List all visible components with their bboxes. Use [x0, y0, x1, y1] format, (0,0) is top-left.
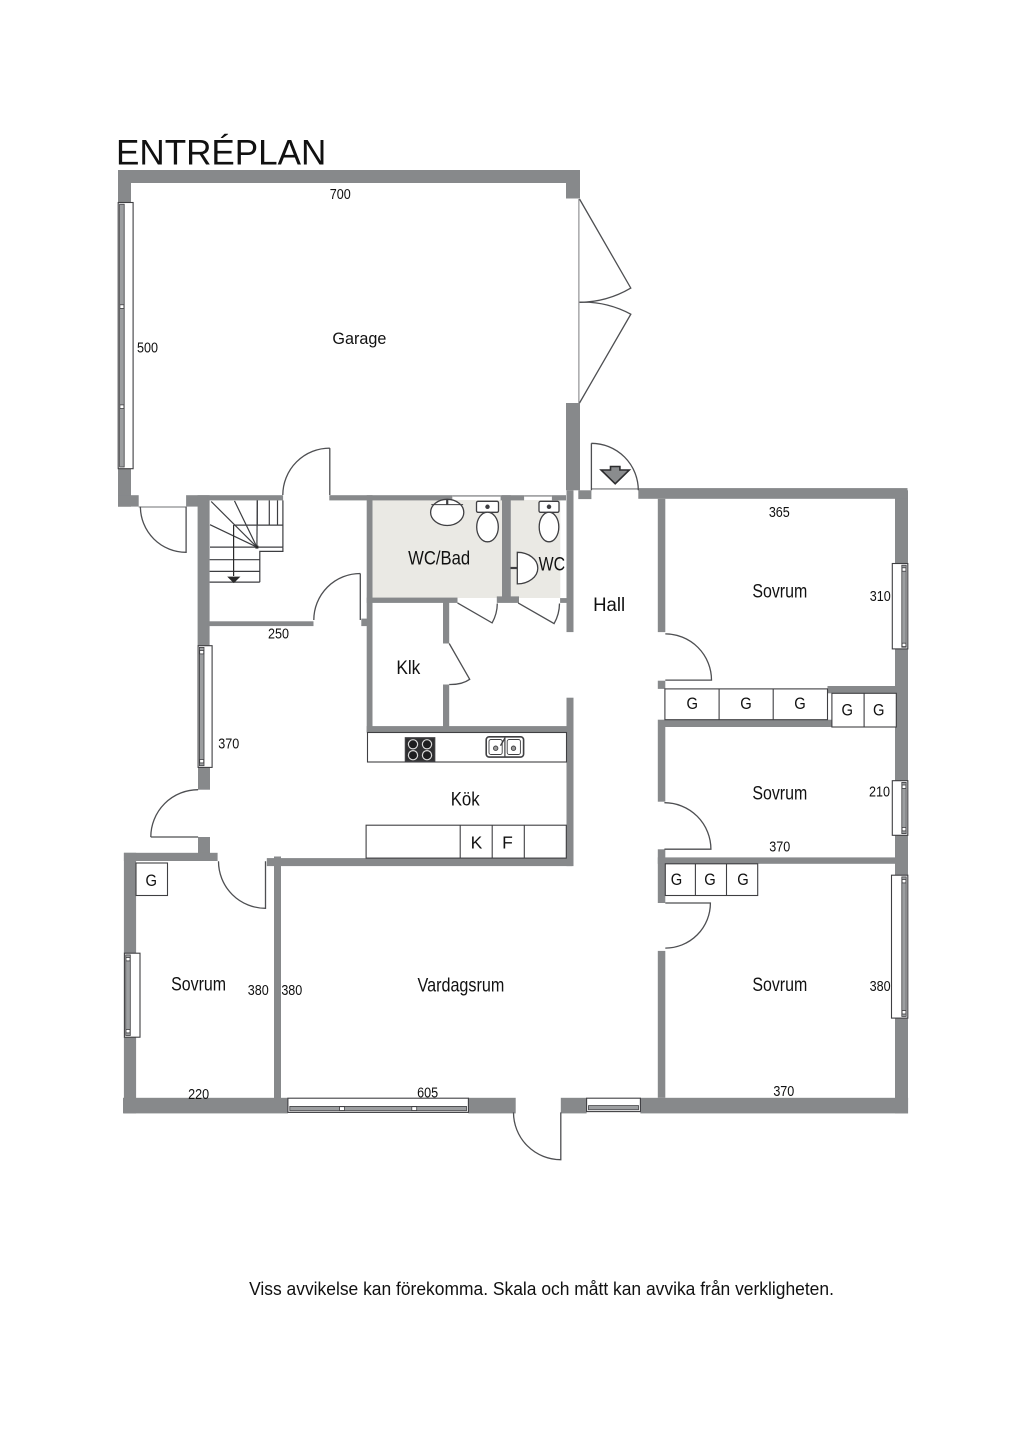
svg-text:365: 365 [769, 503, 790, 520]
svg-text:Hall: Hall [593, 594, 625, 615]
svg-text:G: G [146, 872, 157, 890]
svg-text:Sovrum: Sovrum [171, 973, 226, 995]
svg-text:G: G [794, 695, 805, 713]
svg-text:310: 310 [870, 587, 891, 604]
svg-text:F: F [502, 833, 513, 853]
svg-text:ENTRÉPLAN: ENTRÉPLAN [116, 133, 326, 172]
svg-text:Vardagsrum: Vardagsrum [418, 974, 505, 996]
svg-text:220: 220 [188, 1085, 209, 1102]
svg-text:Sovrum: Sovrum [752, 782, 807, 804]
svg-text:Garage: Garage [332, 330, 386, 348]
svg-text:G: G [873, 702, 884, 720]
svg-text:G: G [740, 695, 751, 713]
svg-text:WC: WC [539, 553, 565, 575]
svg-text:G: G [842, 702, 853, 720]
svg-text:Sovrum: Sovrum [752, 974, 807, 996]
svg-text:G: G [671, 871, 682, 889]
svg-text:WC/Bad: WC/Bad [408, 548, 470, 569]
svg-text:700: 700 [330, 185, 351, 202]
svg-text:G: G [704, 871, 715, 889]
svg-text:370: 370 [218, 734, 239, 751]
svg-text:210: 210 [869, 782, 890, 799]
svg-text:250: 250 [268, 624, 289, 641]
svg-text:G: G [687, 695, 698, 713]
svg-text:380: 380 [248, 981, 269, 998]
svg-text:Klk: Klk [396, 657, 421, 678]
svg-text:380: 380 [281, 981, 302, 998]
svg-text:Sovrum: Sovrum [752, 580, 807, 602]
svg-text:Kök: Kök [451, 789, 480, 810]
svg-text:370: 370 [773, 1082, 794, 1099]
svg-text:G: G [737, 871, 748, 889]
svg-text:380: 380 [870, 977, 891, 994]
svg-text:K: K [471, 833, 483, 853]
svg-text:605: 605 [417, 1083, 438, 1100]
svg-text:370: 370 [769, 837, 790, 854]
svg-text:500: 500 [137, 338, 158, 355]
svg-text:Viss avvikelse kan förekomma.: Viss avvikelse kan förekomma. Skala och … [249, 1279, 834, 1300]
